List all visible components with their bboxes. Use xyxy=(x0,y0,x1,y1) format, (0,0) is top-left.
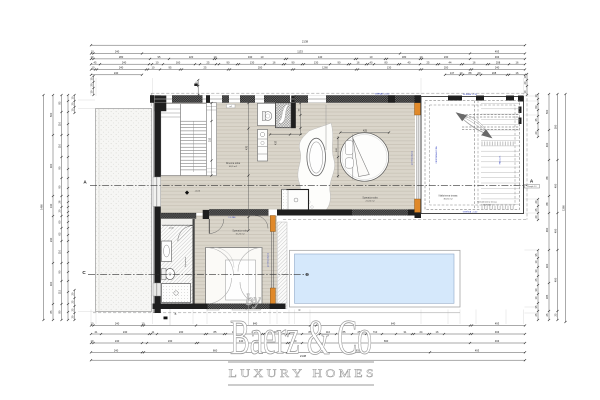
svg-text:280: 280 xyxy=(119,55,124,59)
svg-text:110: 110 xyxy=(58,249,62,254)
svg-text:SLJEME +7,35: SLJEME +7,35 xyxy=(463,94,478,96)
svg-text:180: 180 xyxy=(402,55,407,59)
svg-text:230: 230 xyxy=(168,339,173,343)
svg-text:110: 110 xyxy=(58,121,62,126)
svg-text:OBORINSKA VODA: OBORINSKA VODA xyxy=(435,146,438,164)
svg-text:400: 400 xyxy=(554,277,558,282)
svg-text:115: 115 xyxy=(58,289,62,294)
svg-text:300: 300 xyxy=(49,281,53,286)
svg-text:36,81 m2: 36,81 m2 xyxy=(443,199,453,201)
svg-text:L U X U R Y H O M E S: L U X U R Y H O M E S xyxy=(229,368,374,380)
svg-text:Kupaonica: Kupaonica xyxy=(185,256,187,267)
svg-text:1360: 1360 xyxy=(562,205,566,211)
svg-text:310: 310 xyxy=(209,137,212,142)
svg-text:130: 130 xyxy=(49,203,53,208)
svg-text:493: 493 xyxy=(495,339,500,343)
svg-text:660: 660 xyxy=(213,349,218,353)
svg-text:230: 230 xyxy=(49,237,53,242)
svg-text:240: 240 xyxy=(114,71,119,75)
svg-text:493: 493 xyxy=(475,349,480,353)
svg-text:200: 200 xyxy=(258,66,263,70)
svg-text:240: 240 xyxy=(495,66,500,70)
svg-text:460: 460 xyxy=(545,227,549,232)
svg-text:240: 240 xyxy=(115,50,120,54)
svg-text:240: 240 xyxy=(114,349,119,353)
svg-text:15,26 m2: 15,26 m2 xyxy=(235,234,245,236)
svg-text:185: 185 xyxy=(545,294,549,299)
svg-text:470: 470 xyxy=(246,145,249,150)
svg-text:437: 437 xyxy=(275,140,278,145)
svg-text:22,75 m2: 22,75 m2 xyxy=(483,204,493,206)
svg-text:240: 240 xyxy=(119,66,124,70)
svg-text:690: 690 xyxy=(384,339,389,343)
svg-text:640: 640 xyxy=(391,322,396,326)
svg-text:110: 110 xyxy=(58,143,62,148)
svg-text:425: 425 xyxy=(363,130,368,133)
svg-text:Spavaća soba: Spavaća soba xyxy=(232,230,248,233)
svg-text:1260: 1260 xyxy=(322,66,328,70)
svg-text:493: 493 xyxy=(495,55,500,59)
svg-text:Natkrivena terasa: Natkrivena terasa xyxy=(439,195,458,198)
svg-text:pomična stijena: pomična stijena xyxy=(411,150,414,165)
svg-text:500: 500 xyxy=(545,109,549,114)
svg-text:Dnevna soba: Dnevna soba xyxy=(226,162,241,165)
svg-text:230: 230 xyxy=(179,330,184,334)
svg-text:500: 500 xyxy=(554,124,558,129)
svg-text:130: 130 xyxy=(387,66,392,70)
svg-text:493: 493 xyxy=(495,50,500,54)
svg-text:5 % PAD: 5 % PAD xyxy=(228,216,236,219)
svg-text:Presjek 1-1: Presjek 1-1 xyxy=(527,186,536,188)
svg-text:493: 493 xyxy=(495,322,500,326)
svg-text:2138: 2138 xyxy=(302,39,309,43)
svg-text:200: 200 xyxy=(444,66,449,70)
svg-text:710: 710 xyxy=(373,330,378,334)
svg-text:by: by xyxy=(245,292,261,309)
svg-text:400: 400 xyxy=(554,228,558,233)
svg-text:240: 240 xyxy=(115,339,120,343)
svg-text:VIJENAC +6,10: VIJENAC +6,10 xyxy=(375,93,390,96)
svg-text:130: 130 xyxy=(250,60,255,64)
svg-text:Nenatkrivena terasa: Nenatkrivena terasa xyxy=(477,201,497,204)
svg-text:48,5 m2: 48,5 m2 xyxy=(229,166,238,168)
svg-text:208: 208 xyxy=(496,60,501,64)
svg-text:230: 230 xyxy=(444,55,449,59)
svg-text:PAD 1,5%: PAD 1,5% xyxy=(499,155,502,164)
svg-text:+0,00: +0,00 xyxy=(168,228,174,230)
svg-text:pomična stijena: pomična stijena xyxy=(267,252,270,267)
svg-text:1133: 1133 xyxy=(297,50,303,54)
svg-text:137: 137 xyxy=(450,71,455,75)
svg-text:400: 400 xyxy=(545,142,549,147)
svg-text:130: 130 xyxy=(314,60,319,64)
svg-text:+0,00: +0,00 xyxy=(195,191,201,193)
svg-text:340: 340 xyxy=(248,55,253,59)
svg-text:300: 300 xyxy=(545,263,549,268)
svg-text:400: 400 xyxy=(554,183,558,188)
svg-text:140: 140 xyxy=(318,55,323,59)
svg-text:240: 240 xyxy=(123,330,128,334)
svg-text:GREŠKA + 0,00: GREŠKA + 0,00 xyxy=(463,211,478,214)
svg-text:1460: 1460 xyxy=(40,204,44,210)
svg-text:Spavaća soba: Spavaća soba xyxy=(362,197,378,200)
svg-text:493: 493 xyxy=(495,330,500,334)
svg-text:500: 500 xyxy=(49,112,53,117)
svg-text:Baerz & Co: Baerz & Co xyxy=(230,309,372,365)
svg-text:240: 240 xyxy=(122,60,127,64)
svg-text:21,06 m2: 21,06 m2 xyxy=(365,201,375,203)
svg-text:160: 160 xyxy=(176,60,181,64)
svg-text:220: 220 xyxy=(189,55,194,59)
svg-text:240: 240 xyxy=(115,322,120,326)
svg-text:208: 208 xyxy=(492,71,497,75)
svg-text:300: 300 xyxy=(49,163,53,168)
svg-text:B: B xyxy=(175,312,177,316)
